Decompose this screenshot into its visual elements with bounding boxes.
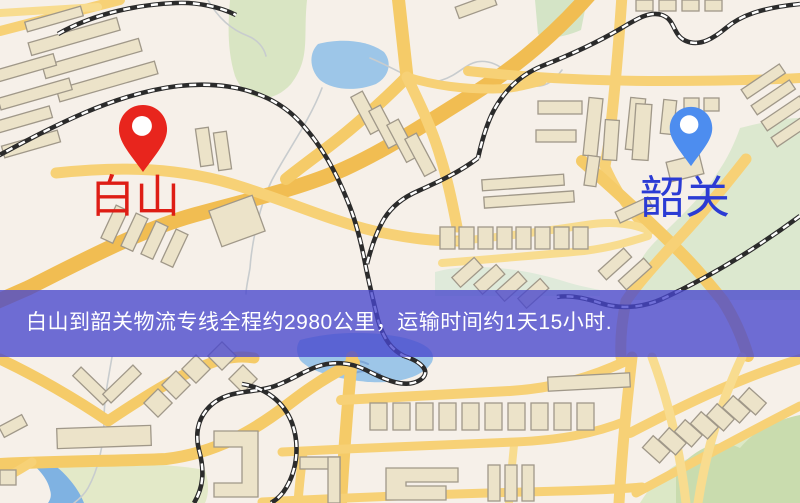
route-info-text: 白山到韶关物流专线全程约2980公里，运输时间约1天15小时. <box>26 306 612 336</box>
route-info-banner: 白山到韶关物流专线全程约2980公里，运输时间约1天15小时. <box>0 290 800 357</box>
destination-pin-icon[interactable] <box>668 106 714 167</box>
origin-label: 白山 <box>90 172 180 222</box>
origin-pin-icon[interactable] <box>117 104 169 173</box>
map-artwork <box>0 0 800 503</box>
destination-label: 韶关 <box>640 173 730 223</box>
map-root[interactable]: 白山到韶关物流专线全程约2980公里，运输时间约1天15小时. 白山 韶关 <box>0 0 800 503</box>
